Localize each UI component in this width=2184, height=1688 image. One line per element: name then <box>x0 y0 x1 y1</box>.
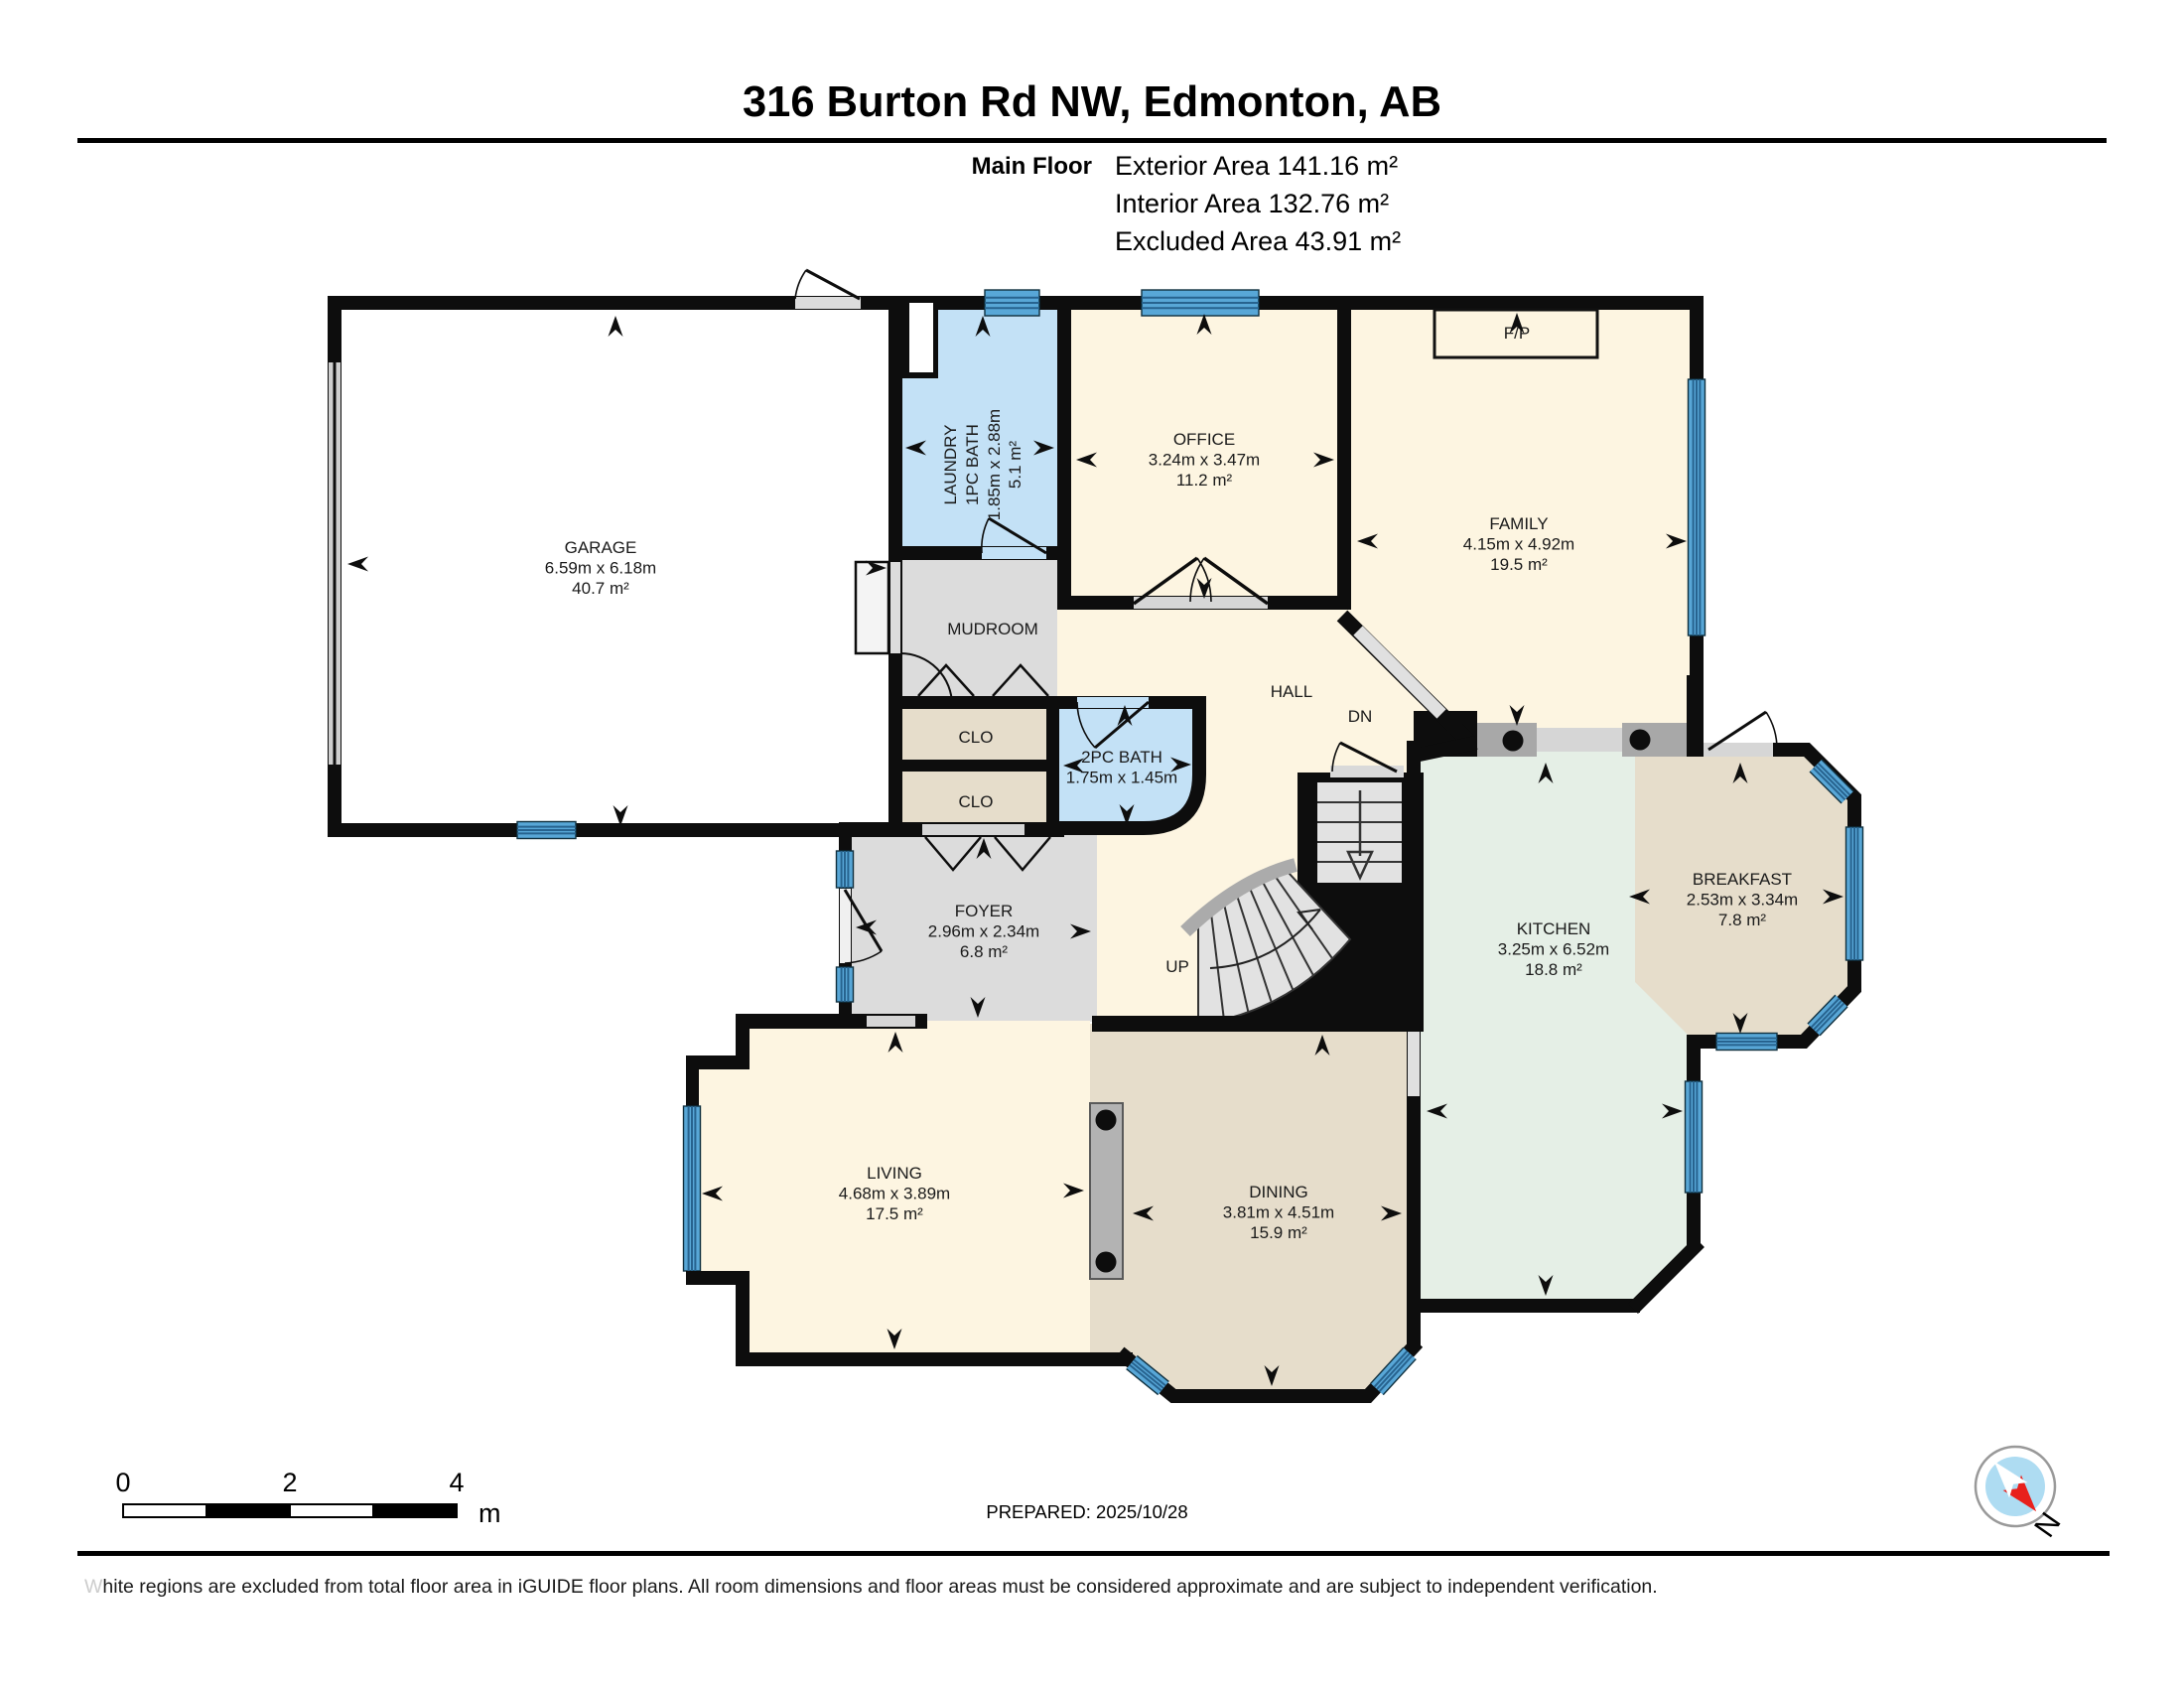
svg-text:BREAKFAST: BREAKFAST <box>1693 870 1792 889</box>
svg-text:Interior Area 132.76 m²: Interior Area 132.76 m² <box>1115 189 1389 218</box>
svg-text:15.9 m²: 15.9 m² <box>1250 1223 1307 1242</box>
svg-text:PREPARED: 2025/10/28: PREPARED: 2025/10/28 <box>986 1501 1187 1522</box>
svg-text:7.8 m²: 7.8 m² <box>1718 911 1767 929</box>
svg-text:LAUNDRY: LAUNDRY <box>941 425 960 505</box>
svg-text:3.25m x 6.52m: 3.25m x 6.52m <box>1498 940 1609 959</box>
svg-text:KITCHEN: KITCHEN <box>1517 919 1591 938</box>
svg-text:OFFICE: OFFICE <box>1173 430 1235 449</box>
svg-text:3.81m x 4.51m: 3.81m x 4.51m <box>1223 1203 1334 1222</box>
svg-text:4.15m x 4.92m: 4.15m x 4.92m <box>1463 535 1574 554</box>
svg-text:m: m <box>478 1498 501 1528</box>
svg-text:6.8 m²: 6.8 m² <box>960 942 1009 961</box>
svg-text:1.75m x 1.45m: 1.75m x 1.45m <box>1066 769 1177 787</box>
svg-text:LIVING: LIVING <box>867 1164 922 1183</box>
svg-text:5.1 m²: 5.1 m² <box>1006 441 1024 490</box>
svg-text:1PC BATH: 1PC BATH <box>963 424 982 505</box>
svg-text:FAMILY: FAMILY <box>1489 514 1548 533</box>
svg-text:2: 2 <box>282 1468 297 1497</box>
svg-text:DINING: DINING <box>1249 1183 1308 1201</box>
svg-text:Exterior Area 141.16 m²: Exterior Area 141.16 m² <box>1115 151 1398 181</box>
svg-text:4.68m x 3.89m: 4.68m x 3.89m <box>839 1185 950 1203</box>
svg-text:11.2 m²: 11.2 m² <box>1176 471 1233 490</box>
svg-text:316 Burton Rd NW, Edmonton, AB: 316 Burton Rd NW, Edmonton, AB <box>743 78 1441 126</box>
svg-text:40.7 m²: 40.7 m² <box>572 579 629 598</box>
svg-text:DN: DN <box>1348 707 1373 726</box>
svg-text:3.24m x 3.47m: 3.24m x 3.47m <box>1149 450 1260 469</box>
svg-text:MUDROOM: MUDROOM <box>947 620 1038 638</box>
svg-text:17.5 m²: 17.5 m² <box>866 1204 923 1223</box>
svg-text:CLO: CLO <box>959 728 994 747</box>
svg-text:1.85m x 2.88m: 1.85m x 2.88m <box>985 409 1004 520</box>
svg-text:Main Floor: Main Floor <box>972 153 1092 180</box>
svg-text:Excluded Area 43.91 m²: Excluded Area 43.91 m² <box>1115 226 1401 256</box>
svg-text:2.96m x 2.34m: 2.96m x 2.34m <box>928 922 1039 941</box>
svg-text:White regions are excluded fro: White regions are excluded from total fl… <box>84 1576 1658 1598</box>
svg-text:GARAGE: GARAGE <box>565 538 637 557</box>
svg-text:4: 4 <box>449 1468 464 1497</box>
svg-text:UP: UP <box>1165 957 1189 976</box>
svg-text:19.5 m²: 19.5 m² <box>1490 555 1548 574</box>
svg-text:FOYER: FOYER <box>955 902 1014 920</box>
svg-text:HALL: HALL <box>1271 682 1313 701</box>
svg-text:6.59m x 6.18m: 6.59m x 6.18m <box>545 559 656 578</box>
svg-text:0: 0 <box>115 1468 130 1497</box>
svg-text:2.53m x 3.34m: 2.53m x 3.34m <box>1687 891 1798 910</box>
svg-text:CLO: CLO <box>959 792 994 811</box>
svg-text:2PC BATH: 2PC BATH <box>1081 748 1162 767</box>
svg-text:18.8 m²: 18.8 m² <box>1525 960 1582 979</box>
